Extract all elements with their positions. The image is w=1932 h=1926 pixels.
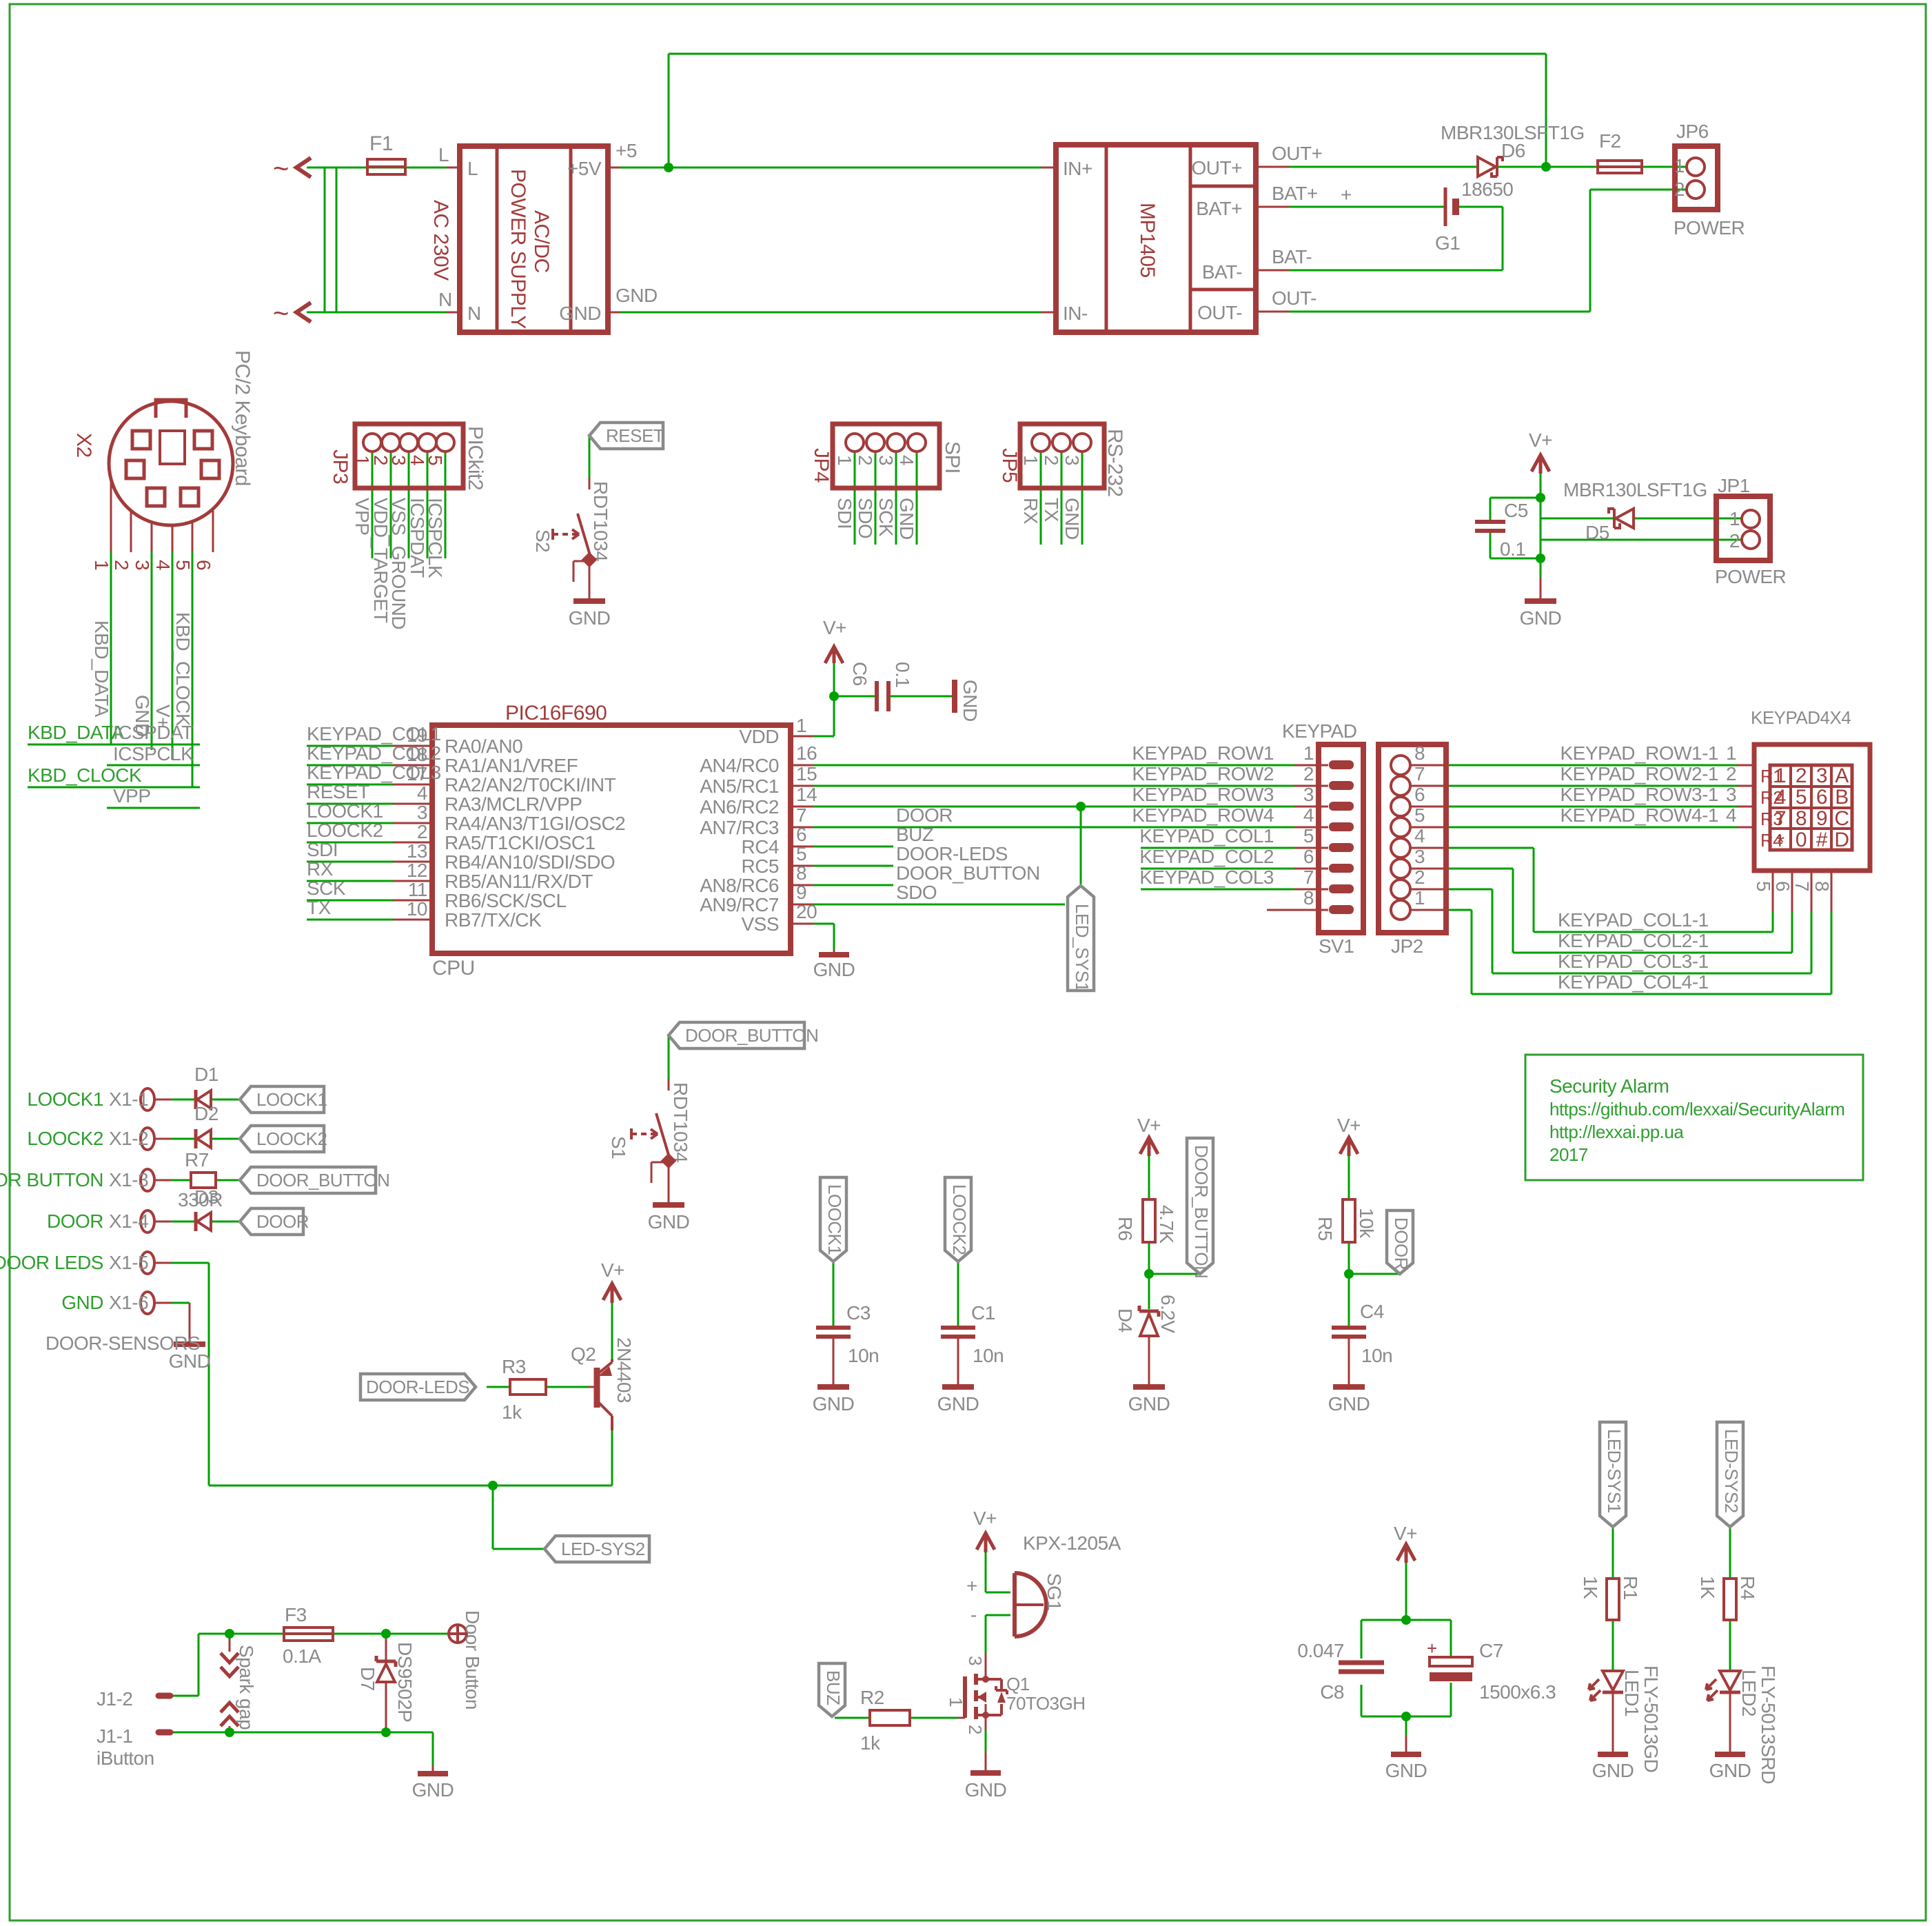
junction-dot [1076, 802, 1086, 811]
c5-value: 0.1 [1500, 538, 1525, 560]
k44-net-col2: KEYPAD_COL2-1 [1558, 930, 1709, 951]
jp6-value: POWER [1674, 217, 1745, 239]
x2-pin3: 3 [132, 560, 153, 570]
jp4-pin3: 3 [875, 455, 897, 465]
c7-name: C7 [1479, 1640, 1503, 1661]
title-line2: https://github.com/lexxai/SecurityAlarm [1549, 1099, 1844, 1119]
x1-green-5: DOOR LEDS [0, 1252, 103, 1273]
r5-value: 10k [1356, 1208, 1377, 1239]
x2-pin2: 2 [111, 560, 132, 570]
jp2-name: JP2 [1391, 935, 1423, 957]
junction-dot [1541, 162, 1551, 172]
g1-name: G1 [1435, 232, 1460, 254]
title-line3: http://lexxai.pp.ua [1549, 1122, 1684, 1142]
f3-name: F3 [285, 1604, 307, 1625]
cpu-rpin-8: 8 [796, 862, 806, 884]
k44-d24: B [1835, 786, 1849, 809]
sv1-pin-5: 5 [1303, 825, 1314, 847]
q2-vplus: V+ [601, 1259, 624, 1281]
cpu-lpin-1: 19 [407, 724, 427, 746]
k44-net-col3: KEYPAD_COL3-1 [1558, 951, 1709, 972]
jp5-value: RS-232 [1104, 429, 1126, 497]
x2-pin1: 1 [91, 560, 112, 570]
sv1-net-6: KEYPAD_COL2 [1139, 846, 1274, 867]
cpu-lname-2: RA1/AN1/VREF [445, 755, 578, 776]
r7-name: R7 [185, 1149, 209, 1170]
cpu-lpin-8: 12 [407, 860, 427, 881]
cpu-title: PIC16F690 [505, 702, 607, 724]
s2-value: RDT1034 [590, 481, 611, 561]
switch-s2 [553, 477, 591, 582]
net-plus5: +5 [616, 140, 637, 161]
switch-s1 [631, 1079, 670, 1183]
r6-vplus: V+ [1137, 1115, 1161, 1136]
ibutton-label: iButton [96, 1747, 154, 1769]
x1-green-3: DOOR BUTTON [0, 1169, 103, 1190]
flag-led-sys2-text: LED-SYS2 [1721, 1429, 1742, 1513]
title-line1: Security Alarm [1549, 1075, 1669, 1097]
flag-loock1-c3: LOOCK1 [820, 1177, 846, 1261]
mp-pin-inp: IN+ [1063, 158, 1092, 179]
jp5-pin2: 2 [1041, 455, 1062, 465]
psu-pin-gnd: GND [559, 303, 601, 324]
sv1-net-4: KEYPAD_ROW4 [1132, 804, 1274, 826]
net-icspclk-h: ICSPCLK [113, 743, 194, 764]
r2-name: R2 [860, 1687, 884, 1708]
flag-loock1-x1: LOOCK1 [240, 1086, 327, 1113]
flag-door-button-s1-text: DOOR_BUTTON [685, 1025, 818, 1046]
junction-dot [225, 1727, 234, 1737]
cpu-lpin-6: 2 [417, 821, 427, 842]
mp-pin-outp: OUT+ [1192, 157, 1242, 179]
cpu-lnet-10: TX [307, 897, 332, 918]
flag-door-x1-text: DOOR [256, 1211, 309, 1232]
cpu-rnet-buz: BUZ [896, 824, 934, 845]
flag-reset: RESET [589, 423, 664, 449]
cpu-rname-1: VDD [739, 726, 779, 747]
k44-d42: 0 [1796, 829, 1807, 851]
led2-value: FLY-5013SRD [1758, 1665, 1779, 1784]
cpu-rpin-9: 9 [796, 882, 806, 903]
q1-name: Q1 [1006, 1674, 1030, 1694]
c7-vplus: V+ [1394, 1523, 1417, 1544]
x1-pin-5: X1-5 [109, 1252, 148, 1273]
sv1-net-3: KEYPAD_ROW3 [1132, 784, 1274, 805]
x1-green-4: DOOR [47, 1210, 103, 1232]
psu-pin-5v: +5V [567, 158, 602, 179]
flag-door-x1: DOOR [240, 1208, 309, 1235]
cpu-lpin-7: 13 [407, 840, 427, 862]
resistor-r1 [1607, 1579, 1619, 1620]
r4-name: R4 [1737, 1576, 1758, 1600]
led1-value: FLY-5013GD [1640, 1665, 1662, 1772]
q1-pin3: 3 [965, 1656, 986, 1665]
mp-pin-batm: BAT- [1202, 261, 1242, 283]
cpu-rname-4: AN6/RC2 [700, 796, 779, 818]
diode-d3 [196, 1212, 211, 1231]
net-kbd-clock-h: KBD_CLOCK [28, 764, 142, 786]
c5-name: C5 [1504, 500, 1528, 521]
d3-name: D3 [194, 1186, 218, 1208]
g1-value: 18650 [1461, 179, 1513, 200]
text-labels: ~~F1LNLNAC 230VPOWER SUPPLYAC/DC+5VGND+5… [0, 121, 1851, 1801]
flag-buz: BUZ [819, 1663, 845, 1716]
c1-name: C1 [971, 1302, 995, 1324]
r1-name: R1 [1620, 1576, 1641, 1600]
cpu-name: CPU [432, 957, 475, 980]
c7-plus: + [1427, 1638, 1437, 1659]
k44-bpin-7: 7 [1791, 881, 1813, 891]
resistor-r5 [1343, 1199, 1355, 1242]
jp2-pin-5: 5 [1414, 804, 1425, 826]
c6-vplus: V+ [823, 617, 846, 638]
cpu-rname-9: AN9/RC7 [700, 894, 779, 915]
psu-title2: AC/DC [530, 210, 553, 273]
flag-door-r5: DOOR [1387, 1210, 1413, 1274]
q1-gnd: GND [965, 1779, 1007, 1801]
jp4-name: JP4 [810, 448, 833, 483]
x1-green-2: LOOCK2 [27, 1128, 103, 1149]
flag-led-sys1-cpu: LED_SYS1 [1068, 886, 1094, 992]
x1-green-6: GND [61, 1292, 103, 1313]
flag-led-sys1-cpu-text: LED_SYS1 [1072, 904, 1092, 992]
junction-dot [1536, 493, 1545, 503]
psu-pin-l: L [467, 158, 478, 179]
c3-name: C3 [846, 1302, 871, 1324]
psu-n-net: N [438, 289, 452, 310]
j1-1-label: J1-1 [96, 1725, 132, 1747]
schematic-page: Security Alarm https://github.com/lexxai… [0, 0, 1932, 1926]
net-batp: BAT+ [1272, 183, 1318, 204]
d2-name: D2 [194, 1103, 218, 1124]
jp1-name: JP1 [1718, 475, 1750, 496]
header-jp2 [1379, 744, 1446, 933]
jp4-pin2: 2 [855, 455, 876, 465]
jp4-net-sdo: SDO [855, 498, 876, 538]
led2-name: LED2 [1738, 1670, 1760, 1716]
jp2-pin-8: 8 [1414, 742, 1425, 764]
cap-c3 [816, 1328, 851, 1337]
cpu-lnet-5: LOOCK1 [307, 800, 383, 822]
sv1-name: SV1 [1319, 935, 1354, 957]
jp4-pin4: 4 [896, 455, 917, 465]
c7-value: 1500x6.3 [1479, 1681, 1556, 1703]
zener-d7 [376, 1634, 396, 1732]
x1-green-1: LOOCK1 [27, 1088, 103, 1110]
flag-loock2-c1: LOOCK2 [945, 1177, 971, 1261]
cpu-lname-8: RB5/AN11/RX/DT [445, 871, 593, 892]
k44-net-row1: KEYPAD_ROW1-1 [1560, 742, 1719, 764]
k44-title: KEYPAD4X4 [1751, 707, 1851, 728]
resistor-r3 [510, 1379, 546, 1395]
cpu-rpin-7: 5 [796, 843, 806, 864]
x1-pin-3: X1-3 [109, 1169, 148, 1190]
x2-net-kbd-data: KBD_DATA [91, 620, 112, 717]
f1-name: F1 [369, 132, 393, 155]
cpu-rname-6: RC4 [741, 836, 779, 858]
flag-door-button-x1-text: DOOR_BUTTON [256, 1170, 389, 1190]
c6-gnd: GND [959, 680, 981, 722]
d7-name: D7 [357, 1667, 378, 1691]
flag-door-button-s1: DOOR_BUTTON [669, 1022, 818, 1048]
cpu-rpin-4: 14 [796, 784, 817, 805]
cpu-lname-3: RA2/AN2/T0CKI/INT [445, 774, 616, 795]
x1-pin-2: X1-2 [109, 1128, 148, 1149]
x1-pin-6: X1-6 [109, 1292, 148, 1313]
sv1-title: KEYPAD [1282, 720, 1357, 742]
fuse-f2 [1598, 161, 1642, 173]
flag-door-button-r6-text: DOOR_BUTTON [1191, 1145, 1212, 1278]
cpu-rnet-door: DOOR [896, 804, 953, 826]
jp1-vplus: V+ [1529, 429, 1552, 451]
cpu-lnet-7: SDI [307, 839, 338, 860]
flag-reset-text: RESET [606, 425, 664, 446]
jp1-gnd: GND [1520, 607, 1562, 629]
cpu-lname-4: RA3/MCLR/VPP [445, 793, 582, 815]
cpu-lpin-2: 18 [407, 744, 427, 765]
d4-name: D4 [1115, 1308, 1136, 1332]
junction-dot [1536, 554, 1545, 563]
k44-d23: 6 [1816, 786, 1827, 809]
junction-dot [381, 1727, 391, 1737]
k44-net-row3: KEYPAD_ROW3-1 [1560, 784, 1719, 805]
jp2-pin-4: 4 [1414, 825, 1425, 847]
junction-dot [1344, 1269, 1354, 1279]
sv1-pin-4: 4 [1303, 804, 1314, 826]
cpu-rnet-doorleds: DOOR-LEDS [896, 843, 1008, 864]
d7-value: DS9502P [394, 1642, 416, 1722]
cpu-lpin-4: 4 [417, 782, 427, 804]
mp-pin-batp: BAT+ [1196, 198, 1242, 219]
jp4-pin1: 1 [834, 455, 855, 465]
cpu-lnet-4: RESET [307, 781, 369, 802]
jp1-pin2: 2 [1729, 530, 1740, 551]
jp1-pin1: 1 [1729, 508, 1740, 529]
c8-name: C8 [1320, 1681, 1344, 1703]
vplus-arrows [603, 455, 1549, 1563]
net-batm: BAT- [1272, 246, 1312, 267]
mosfet-q1 [965, 1674, 1007, 1719]
jp2-pin-6: 6 [1414, 784, 1425, 805]
sv1-net-7: KEYPAD_COL3 [1139, 866, 1274, 888]
k44-d34: C [1834, 807, 1849, 830]
resistor-r2 [870, 1710, 910, 1725]
sv1-net-5: KEYPAD_COL1 [1139, 825, 1274, 847]
x2-pin6: 6 [193, 560, 214, 570]
jp4-net-sck: SCK [875, 498, 897, 537]
junction-dot [1401, 1615, 1411, 1625]
g1-plus: + [1341, 184, 1352, 205]
d5-name: D5 [1585, 522, 1609, 543]
k44-d11: 1 [1775, 764, 1786, 787]
junction-dot [488, 1481, 498, 1490]
k44-d22: 5 [1796, 786, 1807, 809]
x1-gnd: GND [169, 1350, 211, 1372]
jp5-pin3: 3 [1061, 455, 1083, 465]
k44-pin-3: 3 [1726, 784, 1736, 805]
cpu-rnet-sdo: SDO [896, 882, 937, 903]
psu-ac230: AC 230V [429, 200, 452, 281]
flag-door-leds: DOOR-LEDS [360, 1374, 476, 1400]
battery-g1 [1445, 187, 1456, 226]
cpu-lname-1: RA0/AN0 [445, 736, 522, 757]
junction-dot [225, 1629, 234, 1639]
k44-pin-1: 1 [1726, 742, 1736, 764]
ac-input-arrows [296, 158, 311, 322]
jp3-pin1: 1 [352, 455, 373, 465]
cpu-rpin-1: 1 [796, 715, 806, 736]
k44-d33: 9 [1816, 807, 1827, 830]
jp5-net-rx: RX [1020, 498, 1041, 525]
zener-d4 [1139, 1306, 1159, 1336]
s1-value: RDT1034 [670, 1082, 691, 1162]
d4-gnd: GND [1128, 1393, 1170, 1415]
header-sv1 [1319, 744, 1363, 933]
cpu-lpin-10: 10 [407, 898, 427, 920]
buzzer-sg1 [1015, 1573, 1046, 1636]
r1-value: 1K [1580, 1576, 1601, 1599]
led1-gnd: GND [1592, 1760, 1634, 1781]
k44-pin-4: 4 [1726, 804, 1736, 826]
connector-jp1 [1716, 496, 1770, 560]
ac-tilde-l: ~ [273, 154, 289, 184]
jp1-value: POWER [1715, 566, 1786, 587]
c8-gnd: GND [1385, 1760, 1427, 1781]
cap-c4 [1332, 1328, 1366, 1337]
cpu-rpin-6: 6 [796, 824, 806, 845]
jp5-pin1: 1 [1020, 455, 1041, 465]
ps2-connector-x2 [109, 400, 233, 525]
title-block: Security Alarm https://github.com/lexxai… [1525, 1055, 1863, 1180]
psu-pin-n: N [467, 303, 481, 324]
sv1-pin-7: 7 [1303, 866, 1314, 888]
jp3-net-vpp: VPP [352, 498, 373, 536]
d5-value: MBR130LSFT1G [1563, 479, 1707, 500]
k44-d12: 2 [1796, 764, 1807, 787]
net-outp: OUT+ [1272, 143, 1322, 164]
flag-loock1-c3-text: LOOCK1 [824, 1184, 845, 1255]
cpu-lname-9: RB6/SCK/SCL [445, 890, 567, 911]
net-vpp-h: VPP [113, 785, 151, 807]
c1-gnd: GND [937, 1393, 979, 1415]
jp6-name: JP6 [1676, 121, 1709, 142]
junction-dot [1144, 1269, 1154, 1279]
mp-name: MP1405 [1136, 203, 1159, 278]
k44-net-col1: KEYPAD_COL1-1 [1558, 909, 1709, 931]
flag-loock2-x1-text: LOOCK2 [256, 1128, 327, 1149]
cpu-lname-7: RB4/AN10/SDI/SDO [445, 851, 615, 873]
cpu-rname-8: AN8/RC6 [700, 875, 779, 896]
cap-c6 [877, 681, 888, 711]
cpu-lpin-5: 3 [417, 802, 427, 823]
cpu-rnet-doorbutton: DOOR_BUTTON [896, 862, 1040, 884]
jp2-pin-2: 2 [1414, 866, 1425, 888]
sg1-vplus: V+ [973, 1508, 997, 1529]
psu-title1: POWER SUPPLY [507, 169, 529, 329]
cpu-lname-5: RA4/AN3/T1GI/OSC2 [445, 813, 625, 834]
sv1-pin-8: 8 [1303, 887, 1314, 909]
psu-l-net: L [438, 144, 449, 165]
q1-value: 70TO3GH [1006, 1693, 1086, 1714]
jp3-pin5: 5 [425, 455, 446, 465]
cpu-rname-2: AN4/RC0 [700, 755, 779, 776]
q1-pin1: 1 [946, 1697, 966, 1707]
c3-value: 10n [848, 1345, 879, 1366]
cpu-rname-10: VSS [741, 913, 779, 935]
s2-name: S2 [532, 529, 553, 552]
d4-value: 6.2V [1157, 1295, 1179, 1333]
flag-led-sys2-q2: LED-SYS2 [545, 1536, 649, 1562]
sparkgap-label: Spark gap [236, 1645, 257, 1730]
d6-name: D6 [1501, 140, 1525, 161]
transistor-q2 [589, 1359, 612, 1430]
cpu-lname-10: RB7/TX/CK [445, 909, 542, 931]
k44-d14: A [1835, 764, 1849, 787]
cpu-lnet-6: LOOCK2 [307, 820, 383, 841]
s2-gnd: GND [569, 607, 611, 629]
c4-value: 10n [1361, 1345, 1392, 1366]
k44-bpin-5: 5 [1753, 881, 1774, 891]
q2-value: 2N4403 [613, 1337, 635, 1403]
x2-value: PC/2 Keyboard [231, 350, 254, 486]
j1-2-label: J1-2 [96, 1688, 132, 1710]
c8-value: 0.047 [1297, 1640, 1344, 1661]
cpu-rname-7: RC5 [741, 855, 779, 877]
s1-gnd: GND [648, 1211, 690, 1233]
k44-d41: * [1776, 831, 1784, 854]
schematic-canvas: Security Alarm https://github.com/lexxai… [0, 0, 1932, 1926]
r4-value: 1K [1697, 1576, 1718, 1599]
sg1-plus: + [966, 1575, 977, 1596]
x2-pin4: 4 [152, 560, 174, 570]
c6-name: C6 [849, 662, 871, 686]
sv1-pin-6: 6 [1303, 846, 1314, 867]
x1-pin-4: X1-4 [109, 1210, 148, 1232]
resistor-r7 [191, 1173, 216, 1188]
flag-led-sys1-text: LED-SYS1 [1604, 1429, 1625, 1513]
junction-dot [381, 1629, 391, 1639]
fuse-f3 [284, 1628, 333, 1641]
flag-door-leds-text: DOOR-LEDS [366, 1377, 469, 1397]
k44-bpin-6: 6 [1772, 881, 1793, 891]
jp4-net-gnd: GND [896, 498, 917, 540]
k44-net-col4: KEYPAD_COL4-1 [1558, 971, 1709, 993]
jp3-value: PICkit2 [464, 426, 487, 490]
k44-d13: 3 [1816, 764, 1827, 787]
r5-name: R5 [1314, 1217, 1336, 1241]
flag-loock1-x1-text: LOOCK1 [256, 1089, 327, 1110]
cpu-rpin-3: 15 [796, 763, 817, 784]
sv1-pin-3: 3 [1303, 784, 1314, 805]
q1-pin2: 2 [965, 1725, 986, 1734]
title-line4: 2017 [1549, 1144, 1588, 1165]
cap-c5 [1475, 522, 1505, 531]
r6-name: R6 [1115, 1217, 1136, 1241]
jp5-net-gnd: GND [1061, 498, 1083, 540]
net-outm: OUT- [1272, 287, 1316, 309]
cpu-rname-3: AN5/RC1 [700, 776, 779, 797]
f3-value: 0.1A [283, 1645, 321, 1667]
fuse-f1 [367, 159, 405, 174]
led1-name: LED1 [1621, 1670, 1643, 1716]
jp6-pin2: 2 [1674, 179, 1685, 200]
d1-name: D1 [194, 1064, 218, 1085]
sg1-minus: - [970, 1604, 977, 1625]
cpu-lnet-8: RX [307, 858, 334, 880]
sg1-value: KPX-1205A [1023, 1532, 1121, 1554]
cpu-rpin-10: 20 [796, 901, 817, 922]
x2-name: X2 [72, 433, 95, 458]
